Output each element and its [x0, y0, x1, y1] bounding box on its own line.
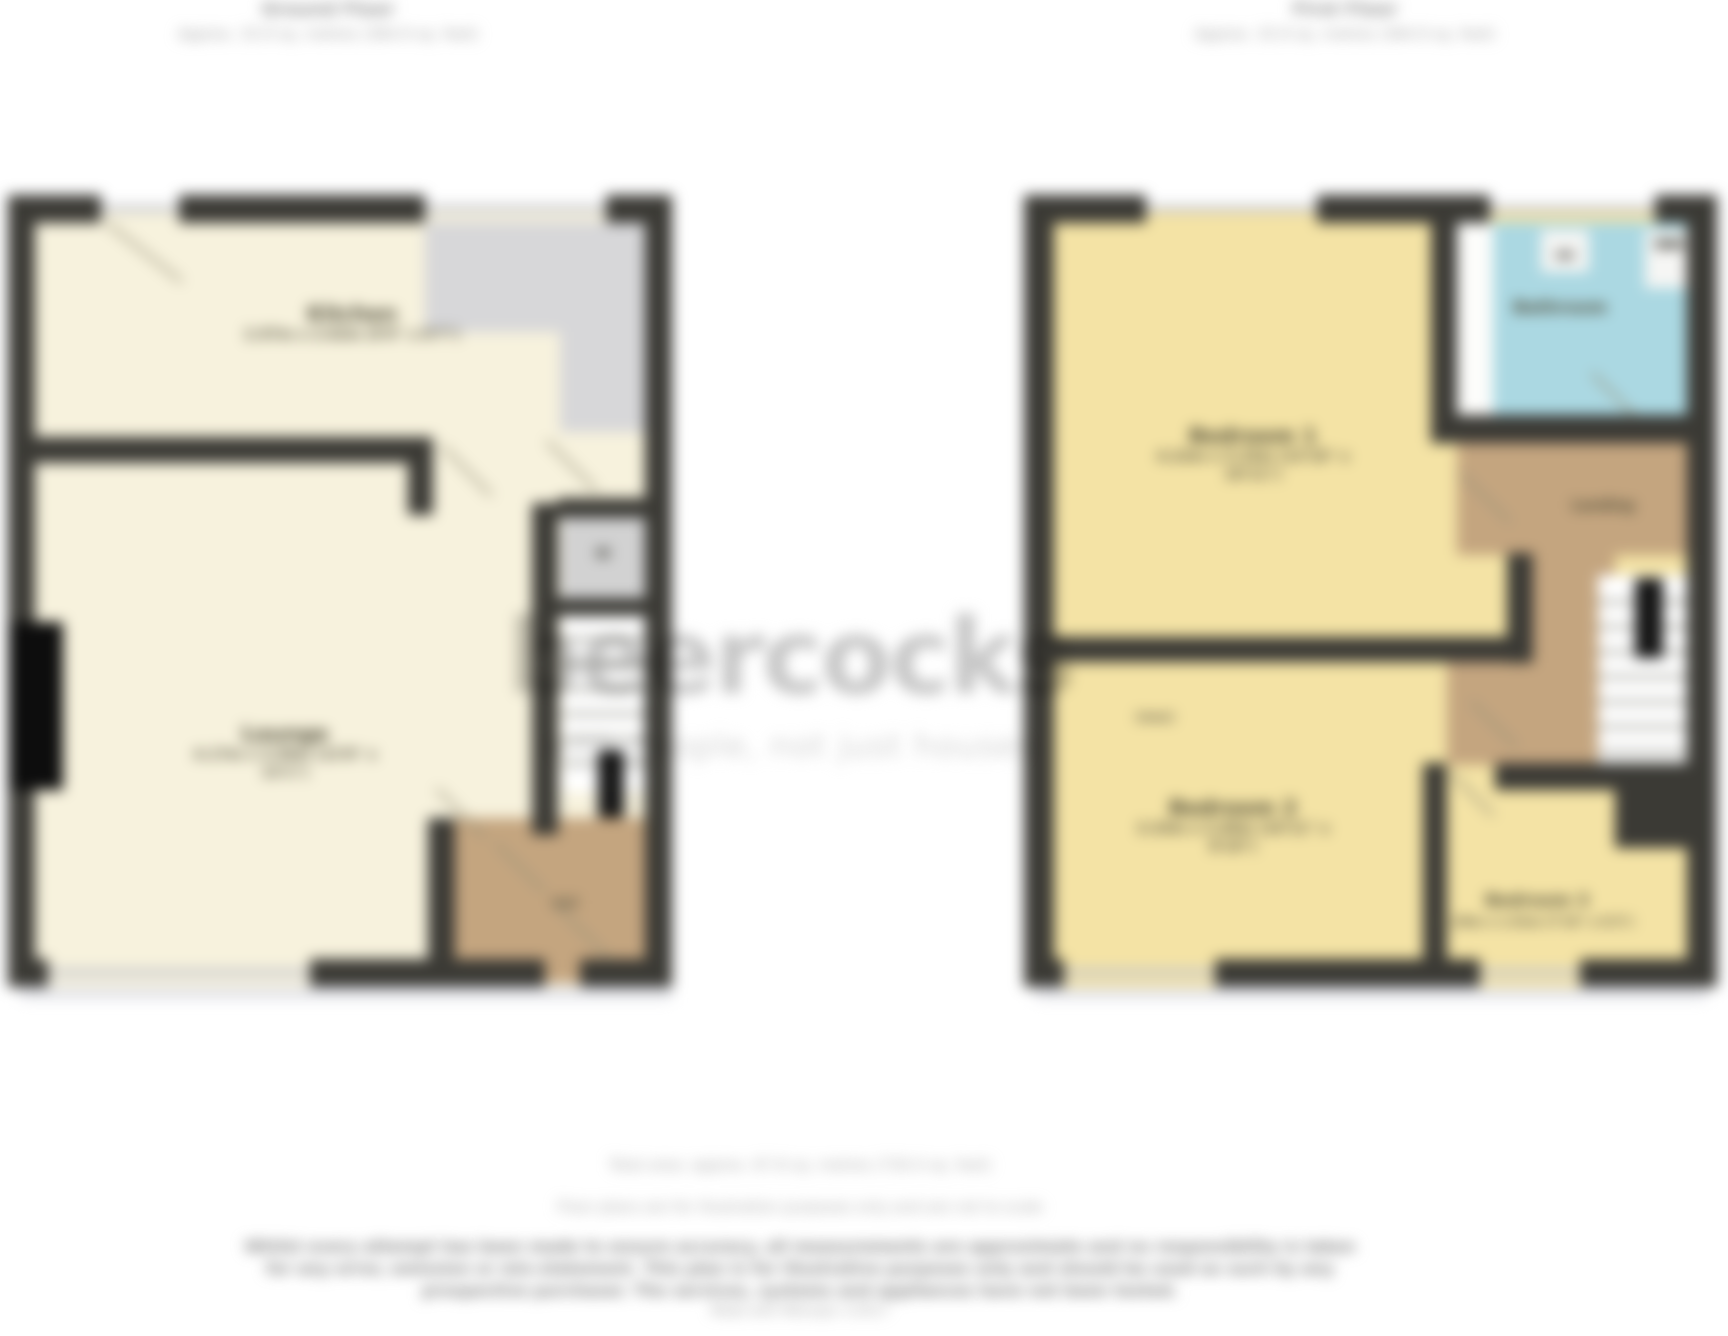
floor-subtitle: Approx. 33.9 sq. metres (364.9 sq. feet): [1145, 25, 1545, 43]
room-label-bedroom3: Bedroom 3 2.39m x 1.91m (7'10" x 6'3"): [1437, 889, 1637, 931]
room-dims: 3.33m x 2.69m (10'11" x 8'10"): [1123, 820, 1343, 856]
understair-wall: [1615, 790, 1693, 848]
room-label-bedroom2: Bedroom 2 3.33m x 2.69m (10'11" x 8'10"): [1123, 796, 1343, 856]
wall: [1024, 959, 1064, 987]
sink-fixture: [1541, 230, 1589, 272]
footer-disclaimer-line: prospective purchaser. The services, sys…: [200, 1280, 1400, 1302]
wall: [1317, 195, 1490, 223]
stair-step: [1598, 700, 1693, 704]
room-name: Kitchen: [242, 302, 462, 326]
room-name: Bedroom 3: [1437, 889, 1637, 913]
interior-wall: [428, 818, 455, 987]
interior-wall: [8, 437, 433, 463]
sink-tap: [1556, 252, 1574, 258]
wall: [1687, 195, 1717, 987]
floorplan-image: Kitchen 2.97m x 2.62m (9'9" x 8'7") Loun…: [0, 0, 1728, 1336]
footer-produced-by: Made with Metropix ©2017: [200, 1304, 1400, 1319]
wc-fixture: [596, 548, 610, 558]
watermark-tagline-block: with people, not just houses: [540, 726, 1040, 765]
watermark-brand-text: beercocks: [470, 602, 1110, 712]
wall: [1024, 195, 1054, 987]
room-label-landing: Landing: [1543, 498, 1663, 514]
room-dims: 2.97m x 2.62m (9'9" x 8'7"): [242, 326, 462, 344]
wall: [580, 959, 672, 987]
room-label-kitchen: Kitchen 2.97m x 2.62m (9'9" x 8'7"): [242, 302, 462, 344]
wall: [645, 195, 672, 987]
stair-handrail: [1635, 578, 1663, 658]
room-name: Bedroom 2: [1123, 796, 1343, 820]
blurred-layer: Kitchen 2.97m x 2.62m (9'9" x 8'7") Loun…: [0, 0, 1728, 1336]
window-glazing: [101, 205, 179, 212]
window-glazing: [425, 205, 606, 212]
interior-wall: [1495, 763, 1717, 790]
room-label-lounge: Lounge 4.17m x 3.99m (13'8" x 13'1"): [175, 722, 395, 782]
interior-wall: [1507, 553, 1533, 663]
room-label-hall: Hall: [520, 896, 610, 910]
chimney-breast: [10, 622, 63, 790]
wall: [1580, 959, 1717, 987]
room-dims: 2.39m x 1.91m (7'10" x 6'3"): [1437, 913, 1637, 931]
interior-wall: [558, 498, 672, 518]
room-landing-floor: [1447, 661, 1615, 765]
watermark-logo: beercocks: [470, 602, 1110, 712]
footer-scale-note: Floor plans are for illustration purpose…: [200, 1198, 1400, 1216]
window-glazing: [1064, 969, 1215, 976]
first-floor-title-block: First Floor Approx. 33.9 sq. metres (364…: [1145, 0, 1545, 43]
plan-shadow: [20, 987, 672, 999]
room-wc-floor: [562, 515, 650, 603]
interior-wall: [1423, 763, 1447, 972]
room-name: Bedroom 1: [1143, 424, 1363, 448]
wall: [179, 195, 425, 223]
window-glazing: [1146, 205, 1317, 212]
toilet-fixture: [1645, 230, 1693, 288]
interior-wall: [1431, 415, 1717, 443]
stair-step: [1598, 675, 1693, 679]
footer-disclaimer-line: for any error, omission or mis-statement…: [200, 1258, 1400, 1280]
footer-total-area: Total area: approx. 67.8 sq. metres (730…: [200, 1156, 1400, 1174]
wall: [8, 195, 35, 987]
floor-title: Ground Floor: [128, 0, 528, 20]
stair-step: [1598, 750, 1693, 754]
plan-shadow: [1035, 987, 1707, 999]
kitchen-counter-side: [560, 222, 652, 432]
window-glazing: [1490, 205, 1655, 212]
floor-title: First Floor: [1145, 0, 1545, 20]
footer-disclaimer-line: Whilst every attempt has been made to en…: [200, 1236, 1400, 1258]
window-glazing: [48, 969, 310, 976]
room-label-bedroom1: Bedroom 1 4.22m x 3.33m (13'10" x 10'11"…: [1143, 424, 1363, 484]
room-dims: 4.22m x 3.33m (13'10" x 10'11"): [1143, 448, 1363, 484]
bathroom-vestibule: [1457, 222, 1493, 417]
room-label-bathroom: Bathroom: [1500, 298, 1620, 318]
ground-floor-title-block: Ground Floor Approx. 33.9 sq. metres (36…: [128, 0, 528, 43]
room-name: Lounge: [175, 722, 395, 746]
room-note-bedroom2: (max): [1085, 710, 1225, 724]
floor-subtitle: Approx. 33.9 sq. metres (364.9 sq. feet): [128, 25, 528, 43]
interior-wall: [408, 437, 433, 515]
stair-step: [1598, 725, 1693, 729]
toilet-cistern: [1655, 240, 1683, 248]
interior-wall: [1431, 195, 1457, 443]
wall: [8, 959, 48, 987]
window-glazing: [1480, 969, 1580, 976]
watermark-tagline-text: with people, not just houses: [540, 726, 1040, 765]
room-dims: 4.17m x 3.99m (13'8" x 13'1"): [175, 746, 395, 782]
